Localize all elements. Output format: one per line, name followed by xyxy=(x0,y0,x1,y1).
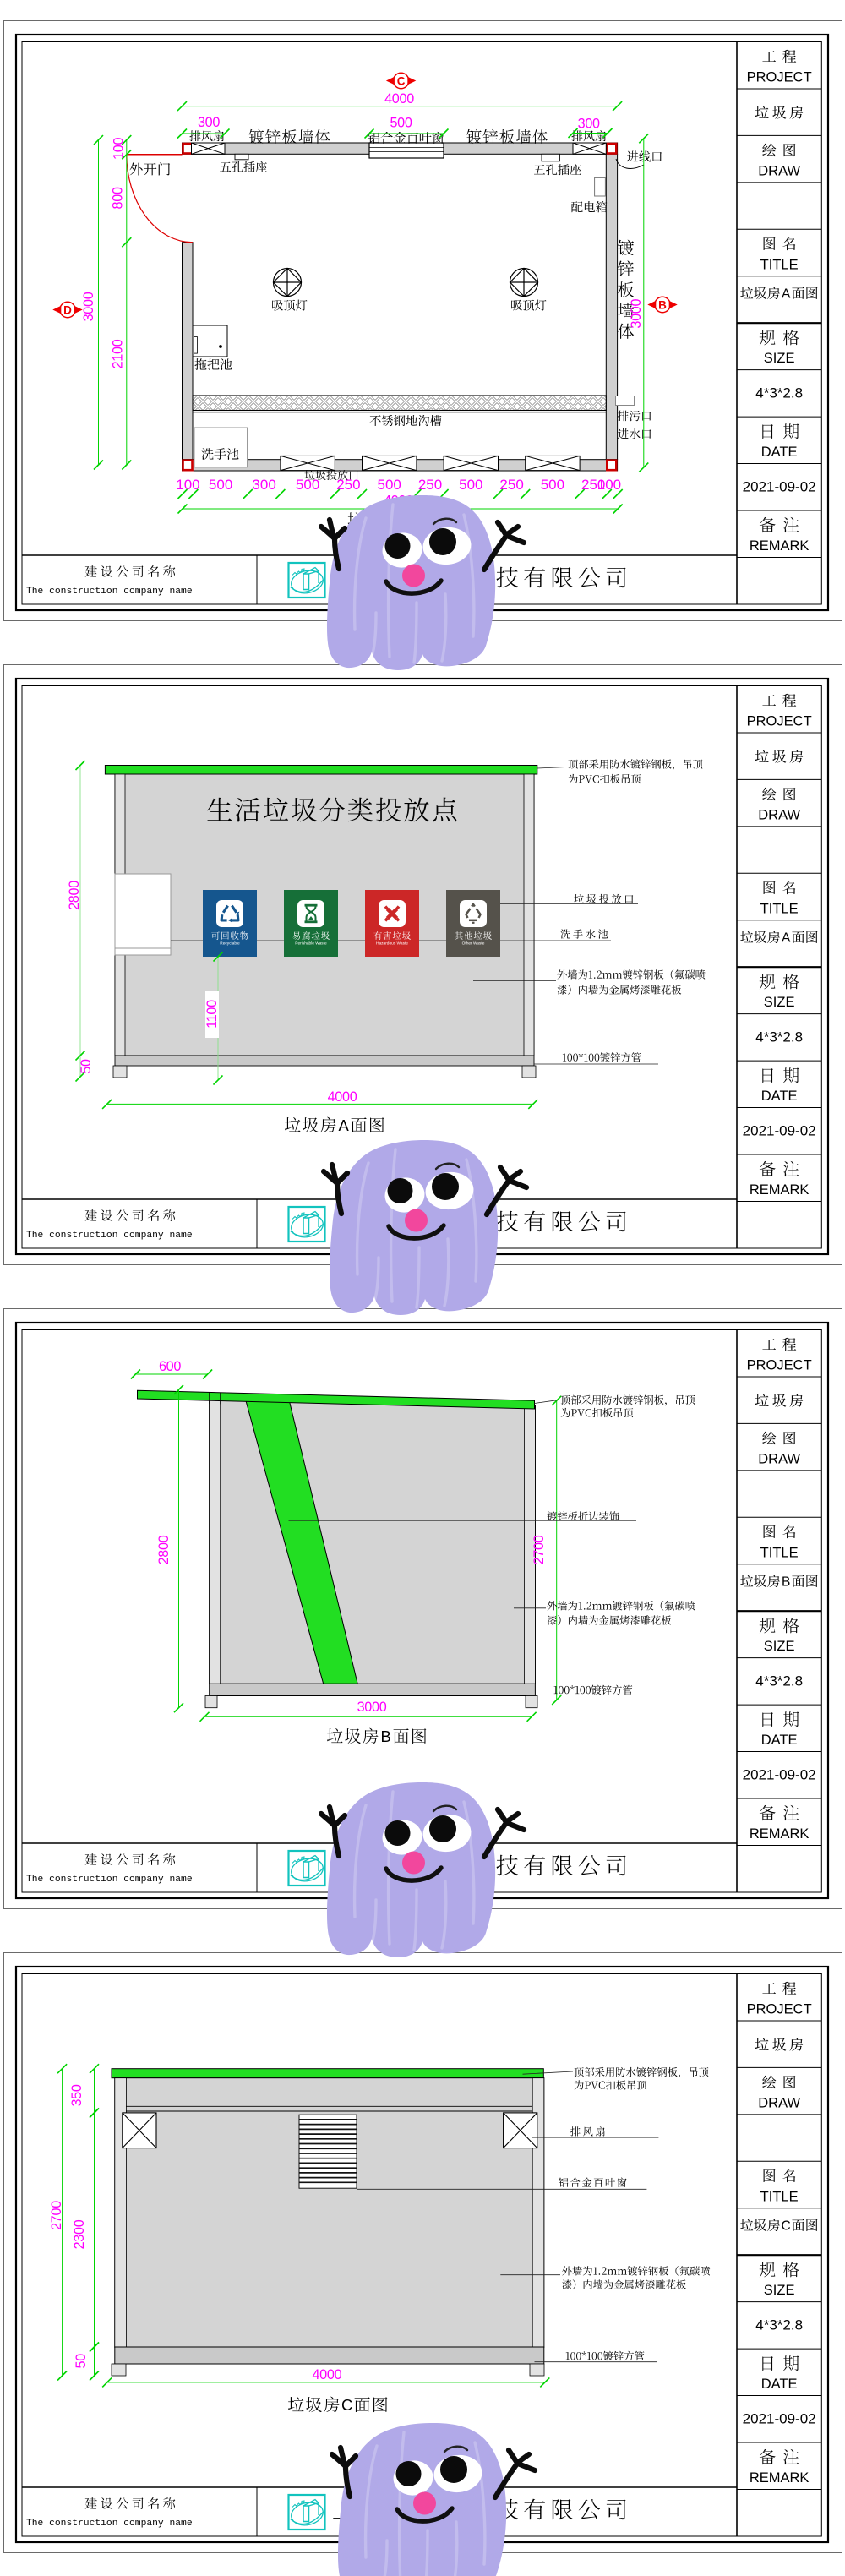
svg-text:500: 500 xyxy=(390,116,412,131)
svg-text:2300: 2300 xyxy=(72,2219,87,2249)
svg-text:3000: 3000 xyxy=(81,292,96,321)
svg-text:500: 500 xyxy=(209,477,232,493)
svg-text:4*3*2.8: 4*3*2.8 xyxy=(755,1673,803,1689)
svg-text:2800: 2800 xyxy=(156,1535,172,1564)
svg-text:800: 800 xyxy=(111,187,126,209)
svg-text:PROJECT: PROJECT xyxy=(747,714,812,729)
svg-text:The construction company name: The construction company name xyxy=(26,1231,193,1241)
svg-text:DATE: DATE xyxy=(761,1733,798,1748)
svg-text:DATE: DATE xyxy=(761,2377,798,2392)
svg-text:2021-09-02: 2021-09-02 xyxy=(743,1767,816,1783)
svg-text:Perishable Waste: Perishable Waste xyxy=(295,941,327,947)
svg-text:2100: 2100 xyxy=(111,339,126,368)
svg-text:500: 500 xyxy=(378,477,401,493)
svg-text:SIZE: SIZE xyxy=(764,995,795,1010)
svg-text:250: 250 xyxy=(418,477,442,493)
svg-text:C: C xyxy=(341,2396,352,2414)
svg-text:B: B xyxy=(658,299,667,312)
svg-text:500: 500 xyxy=(541,477,564,493)
svg-text:DRAW: DRAW xyxy=(758,1451,800,1466)
svg-text:TITLE: TITLE xyxy=(760,901,799,916)
svg-text:2700: 2700 xyxy=(532,1535,547,1564)
svg-text:D: D xyxy=(63,304,72,317)
svg-text:50: 50 xyxy=(79,1059,94,1074)
svg-text:C: C xyxy=(397,75,406,88)
svg-text:The construction company name: The construction company name xyxy=(26,1875,193,1885)
svg-text:PROJECT: PROJECT xyxy=(747,2002,812,2017)
svg-text:300: 300 xyxy=(198,115,220,130)
svg-text:4*3*2.8: 4*3*2.8 xyxy=(755,385,803,401)
svg-text:SIZE: SIZE xyxy=(764,2283,795,2298)
svg-text:DATE: DATE xyxy=(761,445,798,460)
svg-text:A: A xyxy=(338,1116,349,1134)
svg-text:SIZE: SIZE xyxy=(764,1639,795,1654)
svg-text:DRAW: DRAW xyxy=(758,163,800,178)
svg-text:The construction company name: The construction company name xyxy=(26,587,193,597)
svg-text:TITLE: TITLE xyxy=(760,2189,799,2204)
svg-text:TITLE: TITLE xyxy=(760,1545,799,1560)
svg-text:PROJECT: PROJECT xyxy=(747,70,812,85)
svg-text:Other Waste: Other Waste xyxy=(462,941,485,947)
svg-text:3000: 3000 xyxy=(629,298,644,328)
svg-text:REMARK: REMARK xyxy=(750,1182,810,1198)
svg-text:DATE: DATE xyxy=(761,1089,798,1104)
svg-text:2021-09-02: 2021-09-02 xyxy=(743,479,816,495)
svg-text:A: A xyxy=(782,931,791,945)
svg-text:REMARK: REMARK xyxy=(750,538,810,554)
svg-text:SIZE: SIZE xyxy=(764,351,795,366)
svg-text:4000: 4000 xyxy=(312,2367,341,2382)
svg-text:The construction company name: The construction company name xyxy=(26,2519,193,2529)
svg-text:Hazardous Waste: Hazardous Waste xyxy=(376,941,408,947)
svg-text:600: 600 xyxy=(159,1359,181,1374)
svg-text:C: C xyxy=(782,2219,791,2233)
svg-text:Recyclable: Recyclable xyxy=(220,941,240,947)
svg-text:100: 100 xyxy=(597,477,621,493)
svg-text:B: B xyxy=(380,1727,390,1745)
svg-text:DRAW: DRAW xyxy=(758,2095,800,2110)
svg-text:500: 500 xyxy=(459,477,482,493)
svg-text:REMARK: REMARK xyxy=(750,1826,810,1842)
svg-text:TITLE: TITLE xyxy=(760,257,799,272)
svg-text:2021-09-02: 2021-09-02 xyxy=(743,2411,816,2427)
svg-text:1100: 1100 xyxy=(204,1000,220,1029)
svg-text:2021-09-02: 2021-09-02 xyxy=(743,1123,816,1139)
svg-text:PROJECT: PROJECT xyxy=(747,1358,812,1373)
svg-text:250: 250 xyxy=(336,477,360,493)
svg-text:2800: 2800 xyxy=(67,881,82,910)
svg-text:DRAW: DRAW xyxy=(758,807,800,822)
svg-text:250: 250 xyxy=(499,477,523,493)
svg-text:50: 50 xyxy=(74,2354,89,2369)
svg-text:500: 500 xyxy=(296,477,319,493)
svg-text:4*3*2.8: 4*3*2.8 xyxy=(755,2317,803,2333)
svg-text:300: 300 xyxy=(252,477,275,493)
svg-text:4*3*2.8: 4*3*2.8 xyxy=(755,1029,803,1045)
svg-text:4000: 4000 xyxy=(384,91,414,106)
svg-text:A: A xyxy=(782,287,791,301)
svg-text:REMARK: REMARK xyxy=(750,2470,810,2486)
svg-text:350: 350 xyxy=(69,2084,84,2106)
svg-text:3000: 3000 xyxy=(357,1700,387,1715)
svg-text:4000: 4000 xyxy=(328,1089,357,1105)
svg-text:300: 300 xyxy=(578,117,600,132)
svg-text:B: B xyxy=(782,1575,790,1589)
